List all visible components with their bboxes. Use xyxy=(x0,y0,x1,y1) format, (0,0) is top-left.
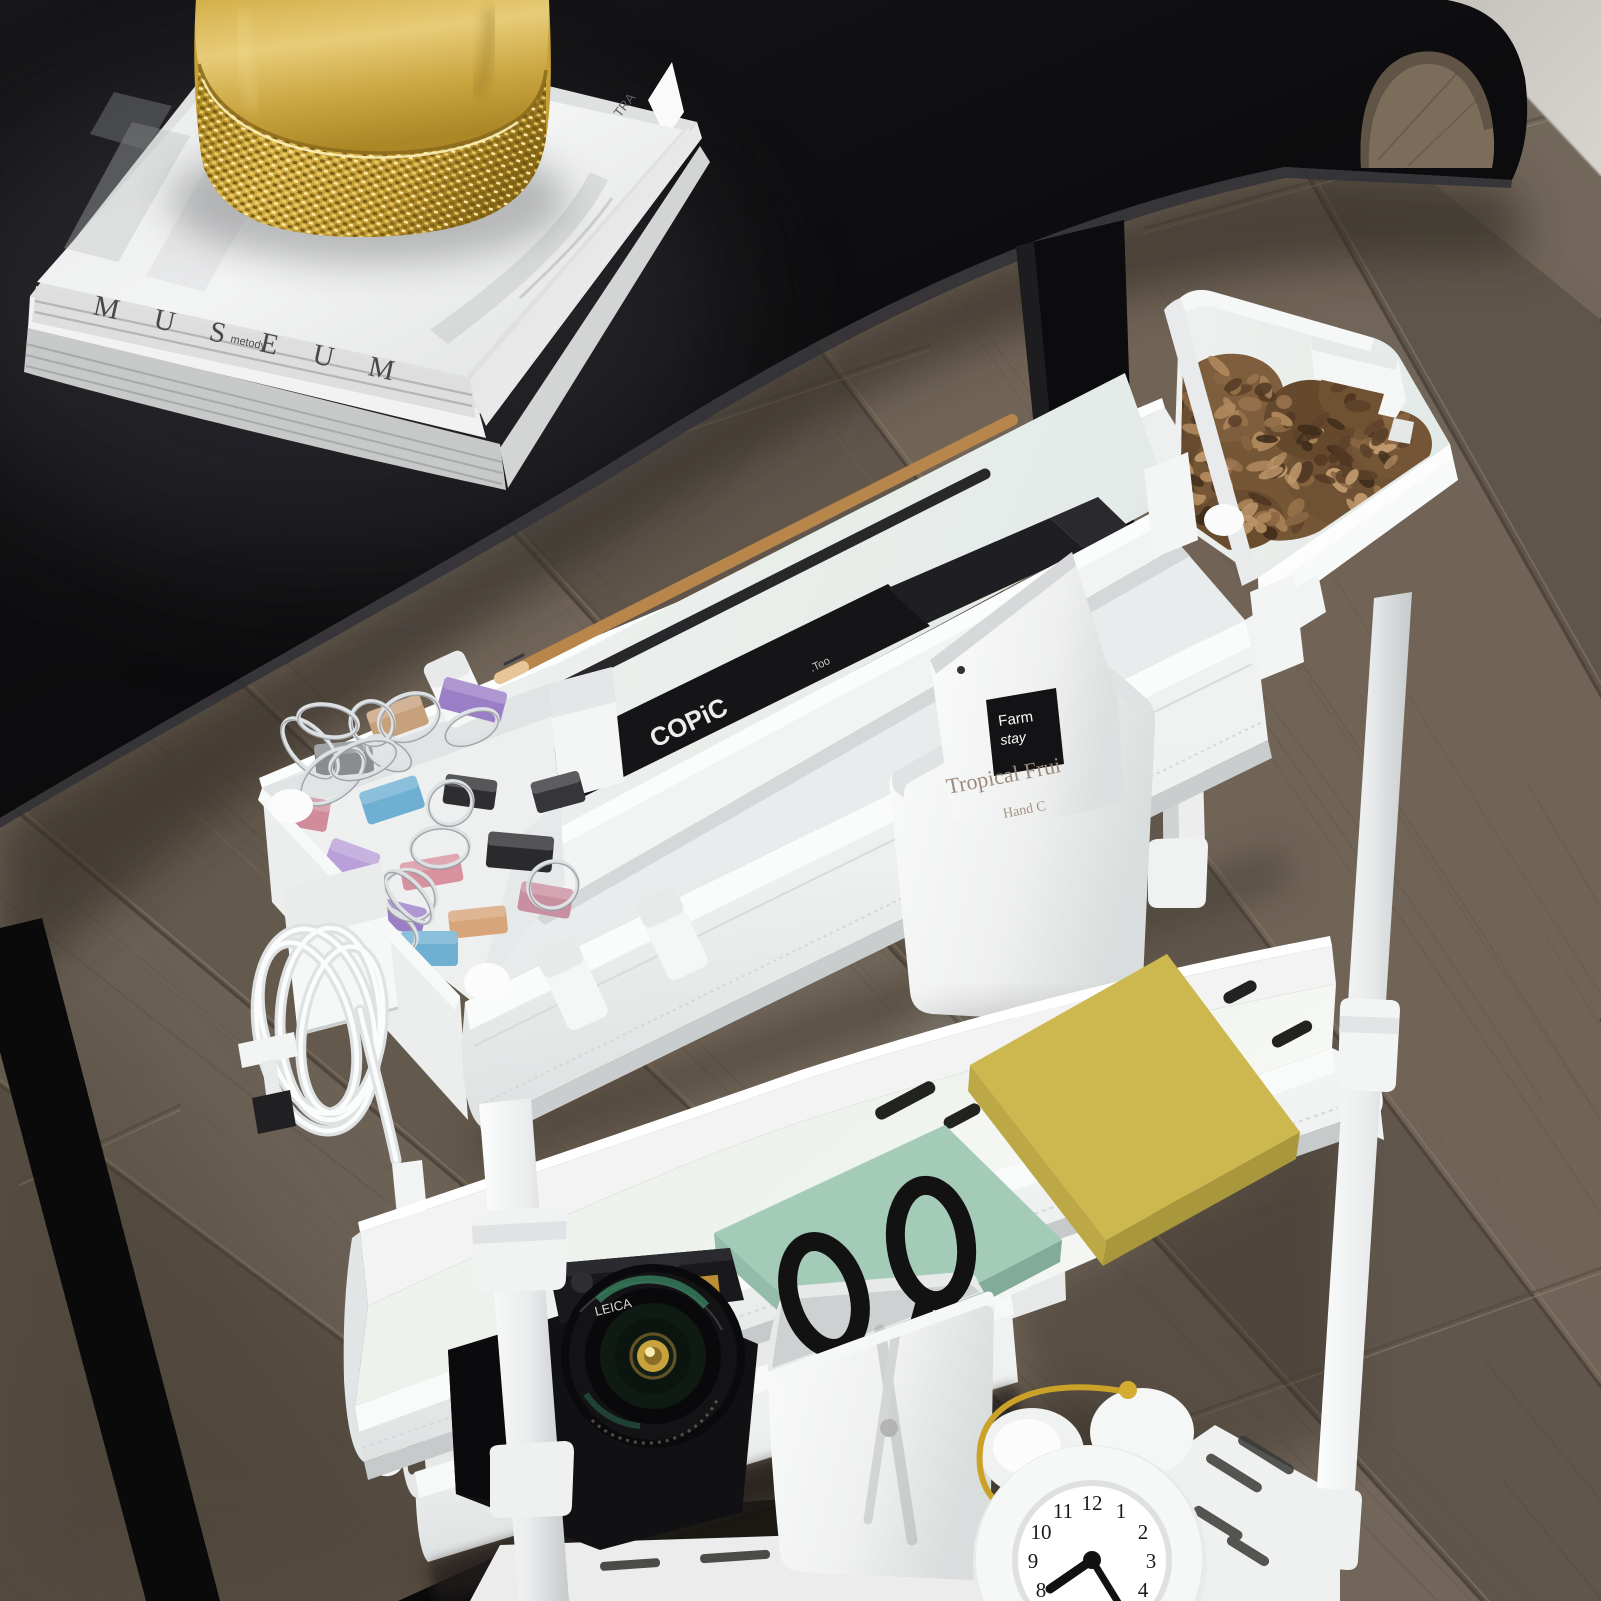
svg-text:2: 2 xyxy=(1138,1520,1149,1544)
svg-text:8: 8 xyxy=(1036,1578,1047,1601)
svg-text:11: 11 xyxy=(1053,1499,1073,1523)
svg-text:4: 4 xyxy=(1138,1578,1149,1601)
svg-text:9: 9 xyxy=(1028,1549,1039,1573)
svg-text:1: 1 xyxy=(1116,1499,1127,1523)
svg-text:10: 10 xyxy=(1031,1520,1052,1544)
svg-text:12: 12 xyxy=(1082,1491,1103,1515)
svg-text:3: 3 xyxy=(1146,1549,1157,1573)
